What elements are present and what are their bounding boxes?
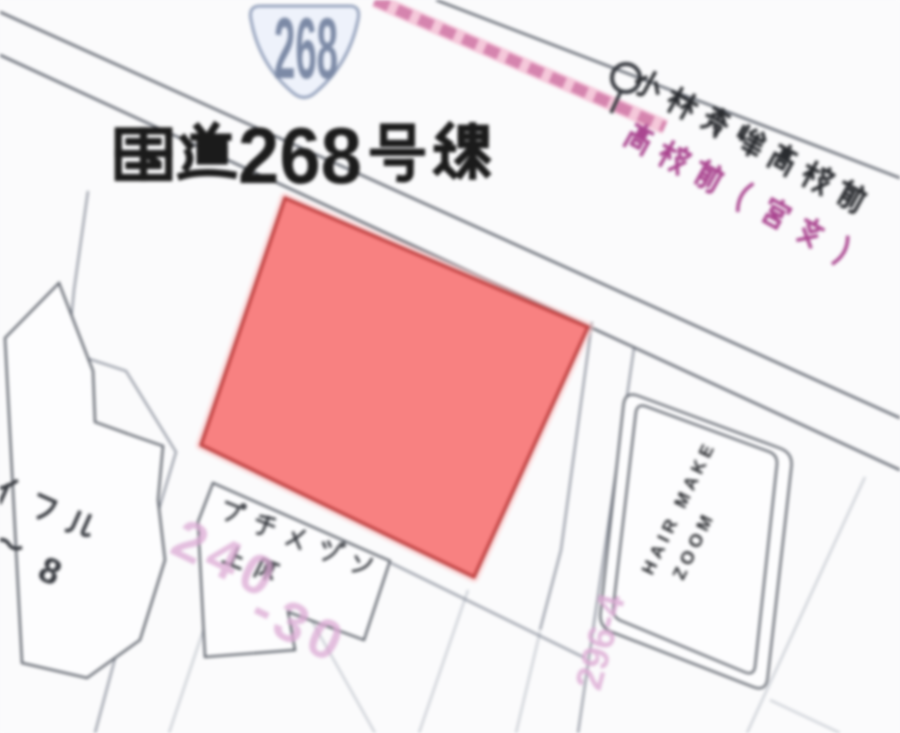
- svg-text:268: 268: [238, 111, 362, 200]
- svg-text:268: 268: [274, 1, 338, 97]
